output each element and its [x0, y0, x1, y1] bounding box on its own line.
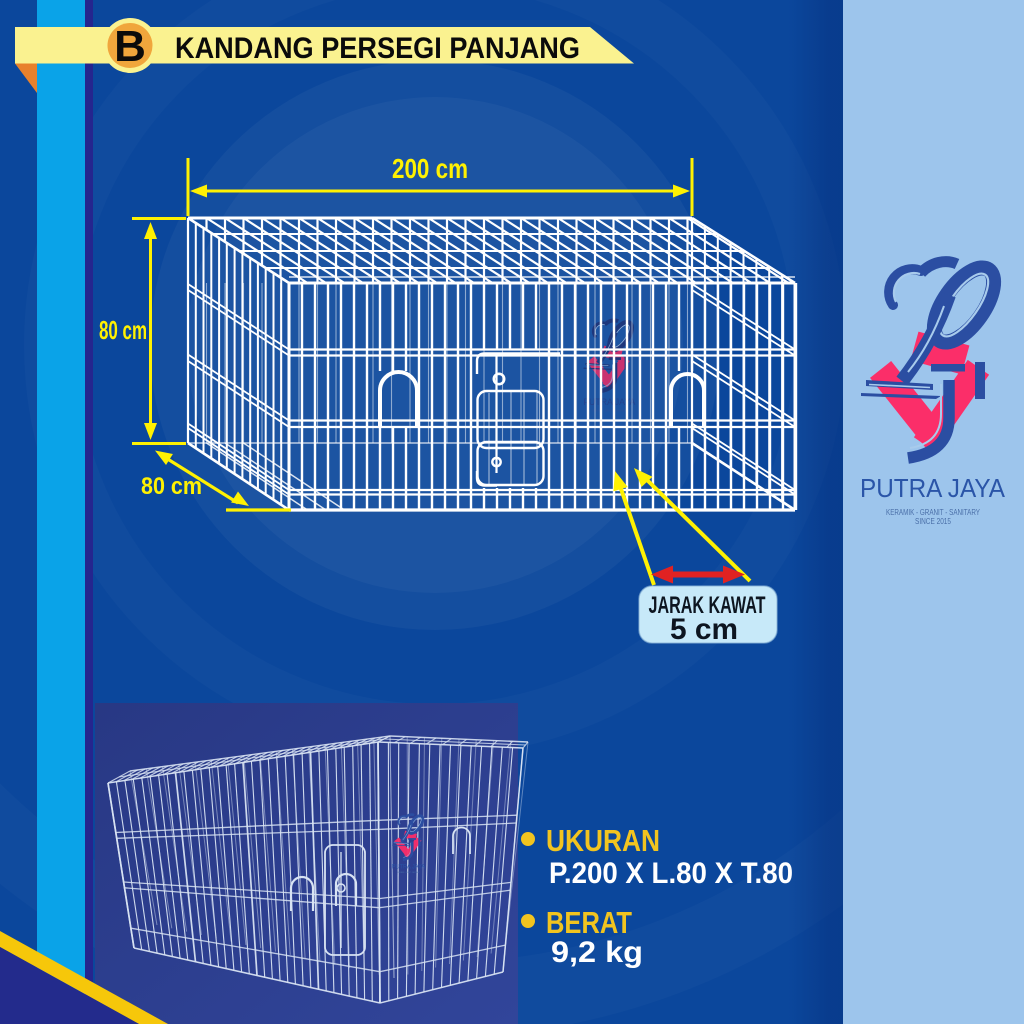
svg-text:5 cm: 5 cm: [670, 613, 738, 646]
svg-text:80 cm: 80 cm: [141, 473, 202, 500]
svg-text:B: B: [114, 22, 146, 71]
svg-text:9,2 kg: 9,2 kg: [551, 936, 643, 969]
svg-text:UKURAN: UKURAN: [546, 823, 660, 858]
svg-text:KANDANG PERSEGI PANJANG: KANDANG PERSEGI PANJANG: [175, 32, 580, 65]
svg-text:PUTRA JAYA: PUTRA JAYA: [860, 473, 1006, 503]
svg-text:P.200 X L.80 X T.80: P.200 X L.80 X T.80: [549, 857, 793, 890]
svg-text:SINCE 2015: SINCE 2015: [915, 517, 951, 526]
svg-text:KERAMIK - GRANIT - SANITARY: KERAMIK - GRANIT - SANITARY: [593, 409, 627, 413]
svg-text:BERAT: BERAT: [546, 905, 632, 940]
svg-text:KERAMIK - GRANIT - SANITARY: KERAMIK - GRANIT - SANITARY: [886, 507, 980, 517]
svg-text:PUTRA JAYA: PUTRA JAYA: [392, 865, 425, 871]
svg-text:80 cm: 80 cm: [99, 315, 147, 345]
svg-text:200 cm: 200 cm: [392, 153, 468, 184]
